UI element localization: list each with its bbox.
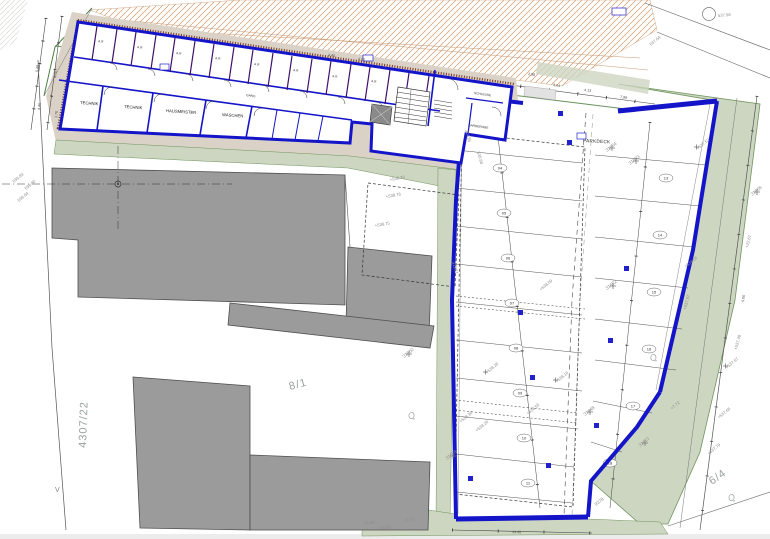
parking-spot-number: 10 xyxy=(522,436,527,441)
floor-plan-canvas: 04 05 06 07 08 09 10 11 13 14 15 16 xyxy=(0,0,770,539)
parking-spot-number: 04 xyxy=(498,166,503,171)
parking-spot-number: 08 xyxy=(514,346,519,351)
staircase xyxy=(394,87,430,126)
parking-spot-number: 15 xyxy=(652,290,657,295)
parking-spot-number: 17 xyxy=(631,404,636,409)
parking-spot-number: 13 xyxy=(664,176,669,181)
dimension-label: 8.70 xyxy=(53,71,58,78)
parking-spot-number: 06 xyxy=(506,256,511,261)
dimension-label: 1.70 xyxy=(54,111,59,118)
parking-spot-number: 14 xyxy=(658,233,663,238)
parking-spot-number: 07 xyxy=(510,301,515,306)
floor-plan-page: 04 05 06 07 08 09 10 11 13 14 15 16 xyxy=(0,0,770,539)
elevator xyxy=(370,104,392,125)
parking-spot-number: 16 xyxy=(647,347,652,352)
dimension-label: 13.45 xyxy=(512,530,521,534)
parking-spot-number: 09 xyxy=(518,391,523,396)
parcel-label-4307-22: 4307/22 xyxy=(77,401,91,448)
dimension-label: 4.46 xyxy=(37,103,42,110)
parking-spot-number: 05 xyxy=(502,211,507,216)
parcel-v-mark: V xyxy=(55,487,60,494)
dimension-label: 5.48 xyxy=(35,65,40,72)
